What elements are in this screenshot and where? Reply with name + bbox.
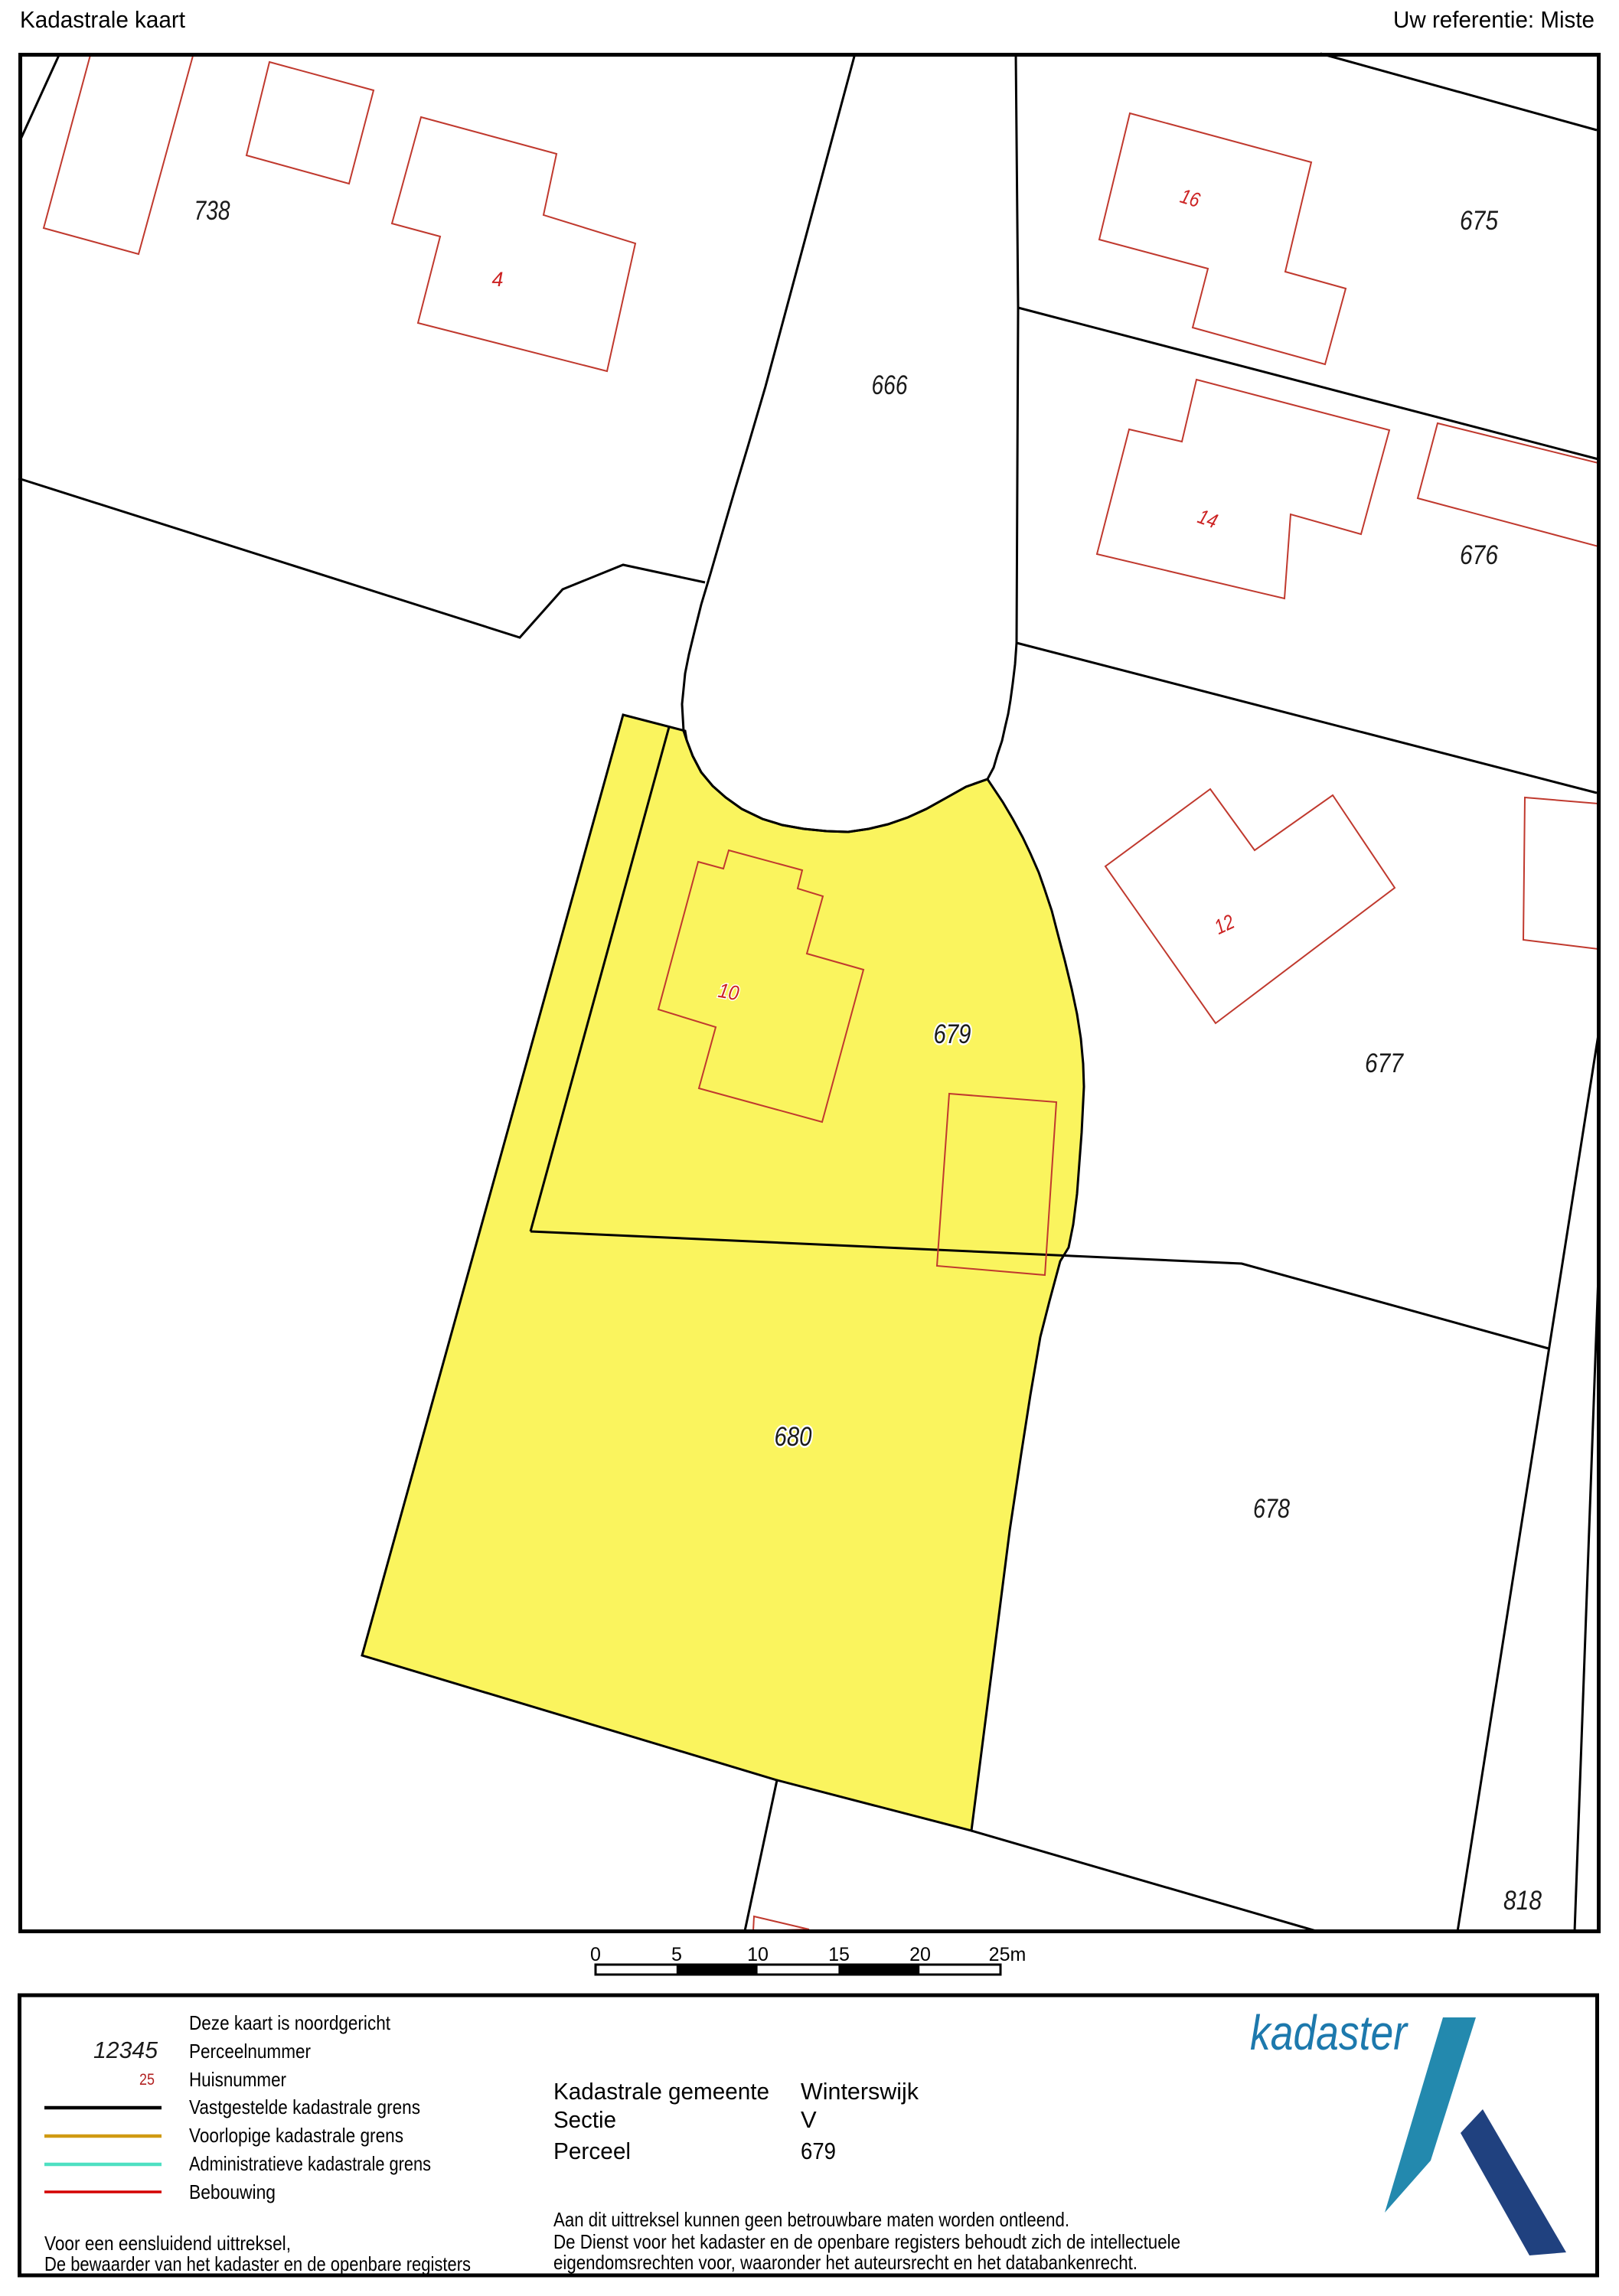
svg-text:677: 677 [1365,1049,1404,1078]
svg-text:Aan dit uittreksel kunnen geen: Aan dit uittreksel kunnen geen betrouwba… [553,2208,1069,2231]
svg-text:12345: 12345 [93,2037,158,2063]
svg-text:Deze kaart is noordgericht: Deze kaart is noordgericht [189,2011,391,2034]
svg-text:678: 678 [1253,1494,1290,1524]
svg-text:818: 818 [1503,1886,1542,1916]
svg-text:Perceel: Perceel [553,2138,631,2164]
svg-text:V: V [801,2106,817,2133]
svg-text:680: 680 [775,1422,812,1452]
svg-text:Huisnummer: Huisnummer [189,2068,286,2091]
svg-text:eigendomsrechten voor, waarond: eigendomsrechten voor, waaronder het aut… [553,2251,1138,2274]
svg-text:20: 20 [909,1944,931,1965]
svg-text:0: 0 [590,1944,601,1965]
svg-text:Kadastrale kaart: Kadastrale kaart [20,6,185,33]
svg-text:Winterswijk: Winterswijk [801,2078,919,2105]
svg-text:666: 666 [872,370,908,400]
svg-text:738: 738 [194,196,230,226]
svg-text:Vastgestelde kadastrale grens: Vastgestelde kadastrale grens [189,2095,420,2118]
svg-text:5: 5 [671,1944,682,1965]
svg-text:De Dienst voor het kadaster en: De Dienst voor het kadaster en de openba… [553,2230,1180,2253]
svg-text:kadaster: kadaster [1250,2005,1408,2060]
svg-text:679: 679 [801,2138,836,2164]
svg-text:4: 4 [491,268,503,291]
svg-text:Kadastrale gemeente: Kadastrale gemeente [553,2078,769,2105]
svg-text:10: 10 [716,979,741,1005]
svg-text:De bewaarder van het kadaster: De bewaarder van het kadaster en de open… [44,2252,471,2275]
svg-text:Sectie: Sectie [553,2106,616,2133]
svg-text:25m: 25m [989,1944,1027,1965]
svg-text:Voor een eensluidend uittrekse: Voor een eensluidend uittreksel, [44,2232,291,2255]
svg-text:679: 679 [934,1019,971,1049]
svg-text:Perceelnummer: Perceelnummer [189,2040,311,2063]
svg-text:Uw referentie: Miste: Uw referentie: Miste [1393,6,1595,33]
svg-text:Administratieve kadastrale gre: Administratieve kadastrale grens [189,2152,431,2175]
svg-text:Bebouwing: Bebouwing [189,2180,276,2203]
svg-text:Voorlopige kadastrale grens: Voorlopige kadastrale grens [189,2124,403,2147]
svg-text:10: 10 [747,1944,769,1965]
svg-text:676: 676 [1460,540,1498,570]
svg-text:25: 25 [139,2071,155,2089]
svg-text:15: 15 [828,1944,850,1965]
svg-text:675: 675 [1460,206,1498,236]
